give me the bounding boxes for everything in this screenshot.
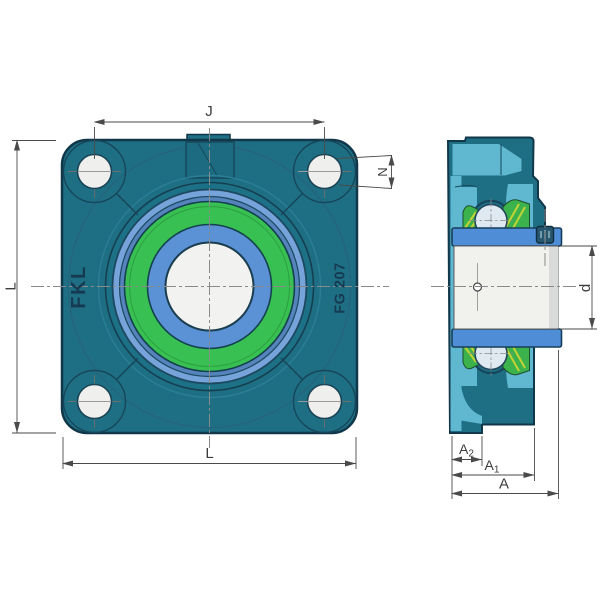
dim-label-n: N [375, 167, 390, 176]
dim-label-l-bottom: L [205, 445, 213, 462]
shaft-section [454, 246, 558, 329]
dim-label-a: A [499, 476, 509, 493]
dim-label-a1: A1 [485, 457, 500, 476]
dim-label-j: J [205, 103, 213, 120]
brand-logo-text: FKL [68, 265, 90, 308]
dim-label-d: d [577, 284, 594, 292]
model-number-text: FG 207 [333, 262, 349, 313]
sleeve-band-bottom [452, 329, 562, 347]
technical-drawing-page: FKL FG 207 [0, 0, 600, 602]
side-view [431, 138, 578, 434]
front-view: FKL FG 207 [31, 128, 389, 448]
dim-label-a2: A2 [459, 441, 474, 460]
bearing-unit-drawing: FKL FG 207 [0, 0, 600, 602]
dim-label-l-left: L [3, 282, 20, 290]
